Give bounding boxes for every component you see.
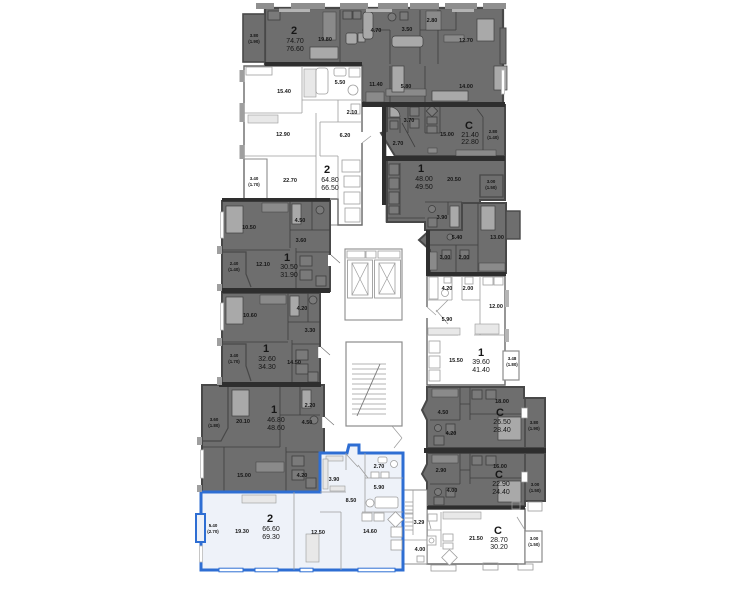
svg-text:14.50: 14.50 (287, 360, 301, 366)
svg-text:(1.90): (1.90) (528, 426, 540, 431)
svg-text:32.60: 32.60 (258, 356, 276, 363)
svg-text:3.70: 3.70 (404, 118, 415, 124)
svg-text:4.50: 4.50 (438, 410, 449, 416)
svg-text:4.20: 4.20 (297, 473, 308, 479)
svg-text:(2.70): (2.70) (207, 529, 219, 534)
svg-text:22.80: 22.80 (461, 139, 479, 146)
svg-text:15.00: 15.00 (237, 473, 251, 479)
svg-text:48.00: 48.00 (415, 176, 433, 183)
svg-text:34.30: 34.30 (258, 364, 276, 371)
svg-text:1: 1 (263, 343, 269, 355)
svg-text:21.40: 21.40 (461, 132, 479, 139)
svg-text:10.50: 10.50 (242, 225, 256, 231)
svg-text:1: 1 (418, 163, 424, 175)
svg-text:(1.50): (1.50) (529, 488, 541, 493)
svg-text:76.60: 76.60 (286, 46, 304, 53)
svg-text:12.10: 12.10 (256, 262, 270, 268)
svg-text:2.90: 2.90 (436, 468, 447, 474)
svg-text:3.00: 3.00 (487, 179, 496, 184)
svg-text:6.20: 6.20 (340, 133, 351, 139)
svg-text:4.20: 4.20 (446, 431, 457, 437)
svg-text:22.70: 22.70 (283, 178, 297, 184)
svg-text:4.70: 4.70 (371, 28, 382, 34)
svg-text:2: 2 (267, 513, 273, 525)
svg-text:20.10: 20.10 (236, 419, 250, 425)
svg-text:8.50: 8.50 (346, 498, 357, 504)
svg-text:22.90: 22.90 (492, 481, 510, 488)
svg-text:3.30: 3.30 (305, 328, 316, 334)
svg-text:2.80: 2.80 (427, 18, 438, 24)
svg-text:(1.80): (1.80) (506, 362, 518, 367)
svg-text:4.50: 4.50 (295, 218, 306, 224)
svg-text:31.90: 31.90 (280, 272, 298, 279)
svg-text:28.40: 28.40 (493, 427, 511, 434)
svg-text:28.70: 28.70 (490, 537, 508, 544)
svg-text:19.30: 19.30 (235, 529, 249, 535)
svg-text:3.50: 3.50 (402, 27, 413, 33)
svg-text:12.70: 12.70 (459, 38, 473, 44)
svg-text:15.40: 15.40 (277, 89, 291, 95)
svg-text:4.00: 4.00 (447, 488, 458, 494)
svg-text:3.80: 3.80 (250, 33, 259, 38)
svg-text:5.50: 5.50 (335, 80, 346, 86)
svg-text:5.40: 5.40 (452, 235, 463, 241)
svg-text:18.00: 18.00 (495, 399, 509, 405)
svg-text:12.90: 12.90 (276, 132, 290, 138)
svg-text:2.00: 2.00 (463, 286, 474, 292)
svg-text:3.90: 3.90 (437, 215, 448, 221)
svg-text:13.00: 13.00 (490, 235, 504, 241)
svg-text:2.40: 2.40 (230, 261, 239, 266)
svg-text:3.40: 3.40 (230, 353, 239, 358)
svg-text:30.50: 30.50 (280, 264, 298, 271)
svg-text:3.60: 3.60 (296, 238, 307, 244)
svg-text:3.60: 3.60 (210, 417, 219, 422)
svg-text:12.00: 12.00 (489, 304, 503, 310)
svg-text:1: 1 (478, 347, 484, 359)
svg-text:69.30: 69.30 (262, 534, 280, 541)
svg-text:21.50: 21.50 (469, 536, 483, 542)
svg-text:10.60: 10.60 (243, 313, 257, 319)
svg-text:2.20: 2.20 (305, 403, 316, 409)
svg-text:66.50: 66.50 (321, 185, 339, 192)
svg-text:(1.50): (1.50) (485, 185, 497, 190)
svg-text:1: 1 (284, 252, 290, 264)
svg-text:3.00: 3.00 (531, 482, 540, 487)
svg-text:(1.90): (1.90) (248, 39, 260, 44)
svg-text:C: C (496, 407, 504, 419)
svg-text:5.80: 5.80 (401, 84, 412, 90)
svg-text:2: 2 (324, 164, 330, 176)
svg-text:64.80: 64.80 (321, 177, 339, 184)
svg-text:(1.70): (1.70) (228, 359, 240, 364)
svg-text:14.60: 14.60 (363, 529, 377, 535)
svg-text:14.00: 14.00 (459, 84, 473, 90)
svg-text:C: C (465, 120, 473, 132)
svg-text:15.50: 15.50 (449, 358, 463, 364)
svg-text:12.50: 12.50 (311, 530, 325, 536)
svg-text:30.20: 30.20 (490, 544, 508, 551)
svg-text:3.90: 3.90 (329, 477, 340, 483)
svg-text:48.60: 48.60 (267, 425, 285, 432)
svg-text:(1.70): (1.70) (248, 182, 260, 187)
svg-text:5.90: 5.90 (442, 317, 453, 323)
svg-text:39.60: 39.60 (472, 359, 490, 366)
svg-text:2.70: 2.70 (374, 464, 385, 470)
svg-text:46.80: 46.80 (267, 417, 285, 424)
svg-text:(1.40): (1.40) (487, 135, 499, 140)
svg-text:3.29: 3.29 (414, 520, 425, 526)
svg-text:(1.40): (1.40) (228, 267, 240, 272)
svg-text:2.00: 2.00 (459, 255, 470, 261)
svg-text:4.00: 4.00 (415, 547, 426, 553)
svg-text:3.40: 3.40 (250, 176, 259, 181)
svg-text:4.20: 4.20 (442, 286, 453, 292)
svg-text:5.40: 5.40 (209, 523, 218, 528)
svg-text:(1.50): (1.50) (528, 542, 540, 547)
svg-text:15.00: 15.00 (440, 132, 454, 138)
svg-text:2.70: 2.70 (393, 141, 404, 147)
svg-text:16.00: 16.00 (493, 464, 507, 470)
svg-text:3.80: 3.80 (530, 420, 539, 425)
svg-text:74.70: 74.70 (286, 38, 304, 45)
svg-text:66.60: 66.60 (262, 526, 280, 533)
svg-text:2.10: 2.10 (347, 110, 358, 116)
svg-text:4.20: 4.20 (297, 306, 308, 312)
svg-text:11.40: 11.40 (369, 82, 382, 88)
svg-text:C: C (494, 525, 502, 537)
svg-text:3.48: 3.48 (508, 356, 517, 361)
svg-text:2.80: 2.80 (489, 129, 498, 134)
svg-text:26.50: 26.50 (493, 419, 511, 426)
svg-text:3.00: 3.00 (440, 255, 451, 261)
svg-text:2: 2 (291, 25, 297, 37)
svg-text:24.40: 24.40 (492, 489, 510, 496)
svg-text:3.00: 3.00 (530, 536, 539, 541)
svg-text:41.40: 41.40 (472, 367, 490, 374)
svg-text:1: 1 (271, 404, 277, 416)
svg-text:20.50: 20.50 (447, 177, 461, 183)
svg-text:(1.80): (1.80) (208, 423, 220, 428)
svg-text:4.50: 4.50 (302, 420, 313, 426)
svg-text:49.50: 49.50 (415, 184, 433, 191)
svg-text:C: C (495, 469, 503, 481)
svg-text:5.90: 5.90 (374, 485, 385, 491)
svg-text:19.80: 19.80 (318, 37, 332, 43)
